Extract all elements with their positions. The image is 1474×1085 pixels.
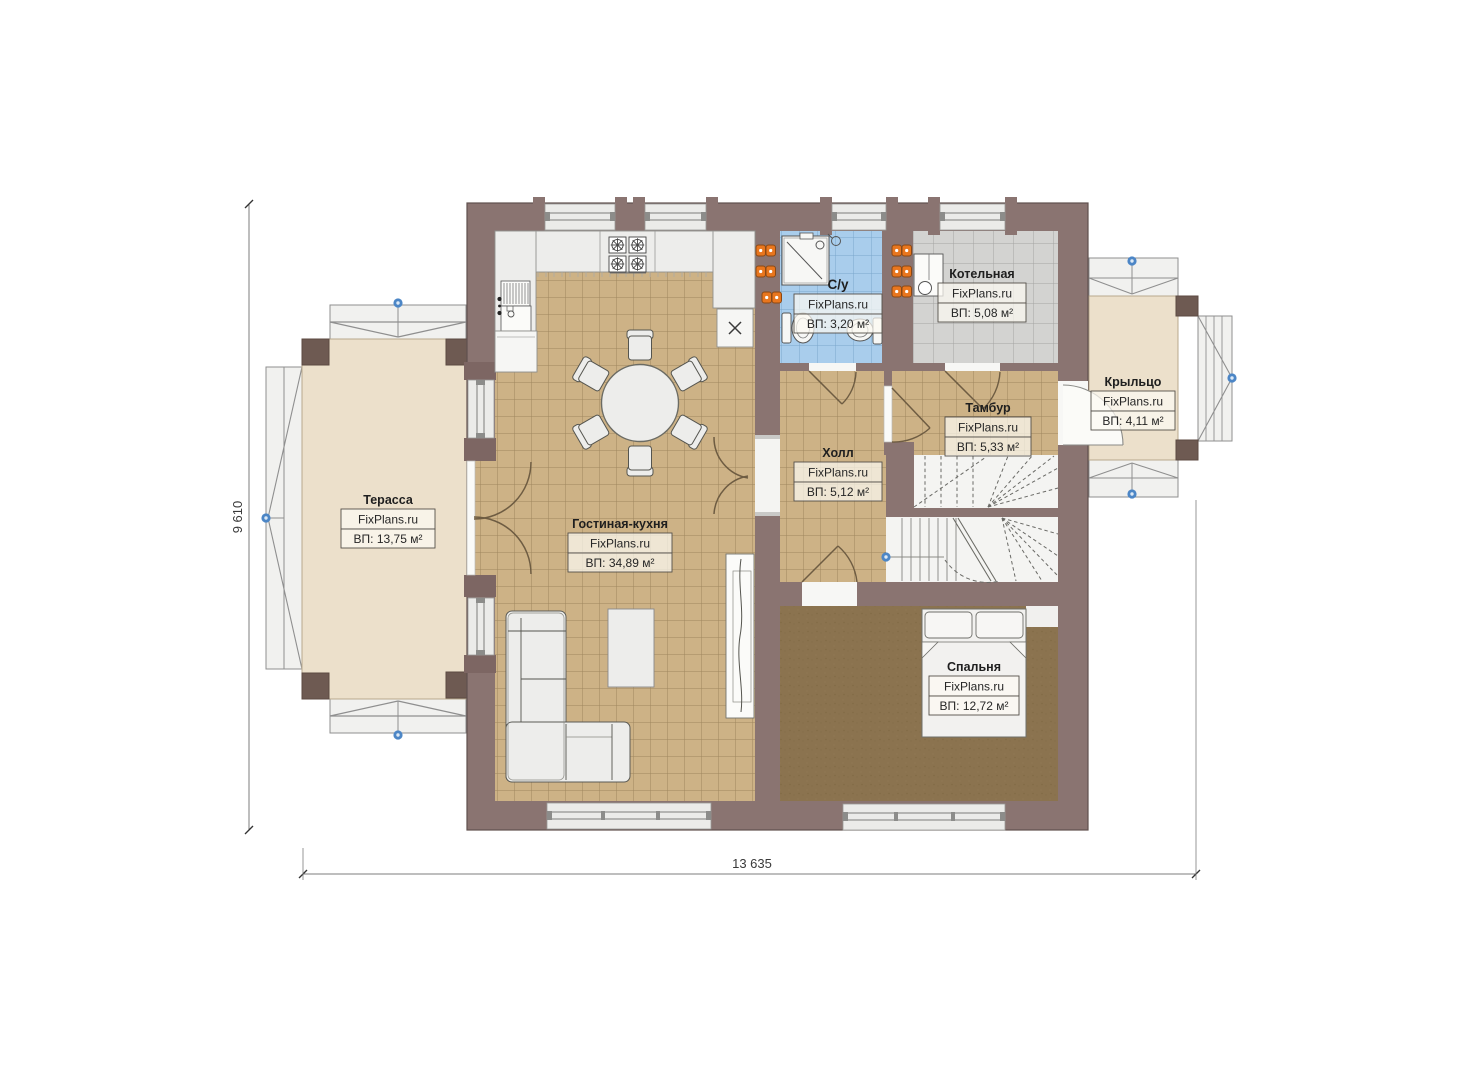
svg-text:ВП: 5,08 м²: ВП: 5,08 м² (951, 306, 1013, 320)
svg-text:Терасса: Терасса (363, 493, 414, 507)
svg-text:13 635: 13 635 (732, 856, 772, 871)
svg-text:ВП: 3,20 м²: ВП: 3,20 м² (807, 317, 869, 331)
svg-text:FixPlans.ru: FixPlans.ru (952, 287, 1012, 301)
svg-text:FixPlans.ru: FixPlans.ru (808, 466, 868, 480)
svg-text:Холл: Холл (822, 446, 853, 460)
svg-text:ВП: 34,89 м²: ВП: 34,89 м² (586, 556, 655, 570)
svg-text:С/у: С/у (827, 277, 849, 292)
svg-text:ВП: 13,75 м²: ВП: 13,75 м² (354, 532, 423, 546)
svg-text:FixPlans.ru: FixPlans.ru (958, 421, 1018, 435)
svg-text:Котельная: Котельная (949, 267, 1014, 281)
svg-text:9 610: 9 610 (230, 501, 245, 534)
svg-text:Гостиная-кухня: Гостиная-кухня (572, 517, 668, 531)
svg-text:FixPlans.ru: FixPlans.ru (590, 537, 650, 551)
svg-text:Спальня: Спальня (947, 660, 1001, 674)
svg-text:ВП: 5,33 м²: ВП: 5,33 м² (957, 440, 1019, 454)
svg-text:FixPlans.ru: FixPlans.ru (1103, 395, 1163, 409)
svg-text:ВП: 12,72 м²: ВП: 12,72 м² (940, 699, 1009, 713)
svg-text:ВП: 5,12 м²: ВП: 5,12 м² (807, 485, 869, 499)
svg-text:Тамбур: Тамбур (965, 401, 1011, 415)
svg-text:FixPlans.ru: FixPlans.ru (808, 298, 868, 312)
svg-text:FixPlans.ru: FixPlans.ru (944, 680, 1004, 694)
svg-text:FixPlans.ru: FixPlans.ru (358, 513, 418, 527)
svg-text:Крыльцо: Крыльцо (1105, 375, 1162, 389)
svg-text:ВП: 4,11 м²: ВП: 4,11 м² (1102, 414, 1163, 428)
